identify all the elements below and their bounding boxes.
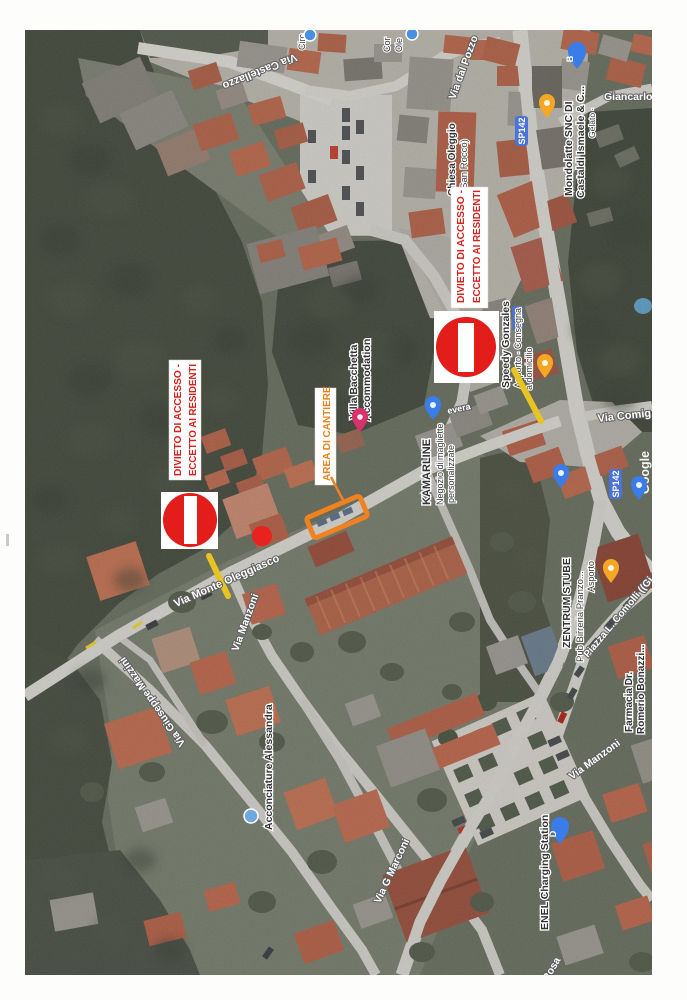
svg-text:Gelato ·: Gelato · — [587, 108, 597, 138]
svg-text:B: B — [565, 55, 575, 62]
svg-text:D: D — [548, 830, 558, 837]
svg-text:Romerio Bonazzi...: Romerio Bonazzi... — [636, 644, 647, 734]
svg-text:DIVIETO DI ACCESSO -: DIVIETO DI ACCESSO - — [172, 364, 184, 476]
svg-text:ECCETTO AI RESIDENTI: ECCETTO AI RESIDENTI — [187, 364, 199, 476]
svg-text:SP142: SP142 — [517, 117, 527, 144]
svg-text:Mondolatte SNC DI: Mondolatte SNC DI — [563, 101, 575, 196]
svg-text:ECCETTO AI RESIDENTI: ECCETTO AI RESIDENTI — [471, 190, 483, 303]
svg-text:Speedy Gonzales: Speedy Gonzales — [500, 301, 512, 388]
svg-text:Villa Bacchetta: Villa Bacchetta — [348, 344, 360, 419]
svg-text:Asporto: Asporto — [586, 561, 596, 592]
svg-text:Negozio di magliette: Negozio di magliette — [435, 423, 445, 505]
svg-text:DIVIETO DI ACCESSO -: DIVIETO DI ACCESSO - — [455, 190, 467, 303]
svg-text:AREA DI CANTIERE: AREA DI CANTIERE — [322, 386, 333, 481]
svg-text:personalizzate: personalizzate — [446, 445, 456, 503]
svg-text:SP142: SP142 — [611, 470, 621, 497]
svg-text:Castaldi Ismaele & C...: Castaldi Ismaele & C... — [575, 86, 587, 198]
svg-text:Ole: Ole — [394, 38, 404, 52]
svg-text:ZENTRUM STUBE: ZENTRUM STUBE — [561, 558, 573, 648]
svg-text:KAMARLINE: KAMARLINE — [421, 439, 433, 505]
svg-text:Acconciature Alessandra: Acconciature Alessandra — [263, 704, 275, 830]
svg-text:Farmacia Dr.: Farmacia Dr. — [624, 672, 635, 732]
svg-text:Chiesa Oleggio: Chiesa Oleggio — [447, 123, 458, 196]
svg-text:(San Rocco): (San Rocco) — [459, 139, 470, 192]
svg-text:Cor: Cor — [382, 37, 392, 52]
svg-text:a domicilio: a domicilio — [524, 347, 534, 390]
